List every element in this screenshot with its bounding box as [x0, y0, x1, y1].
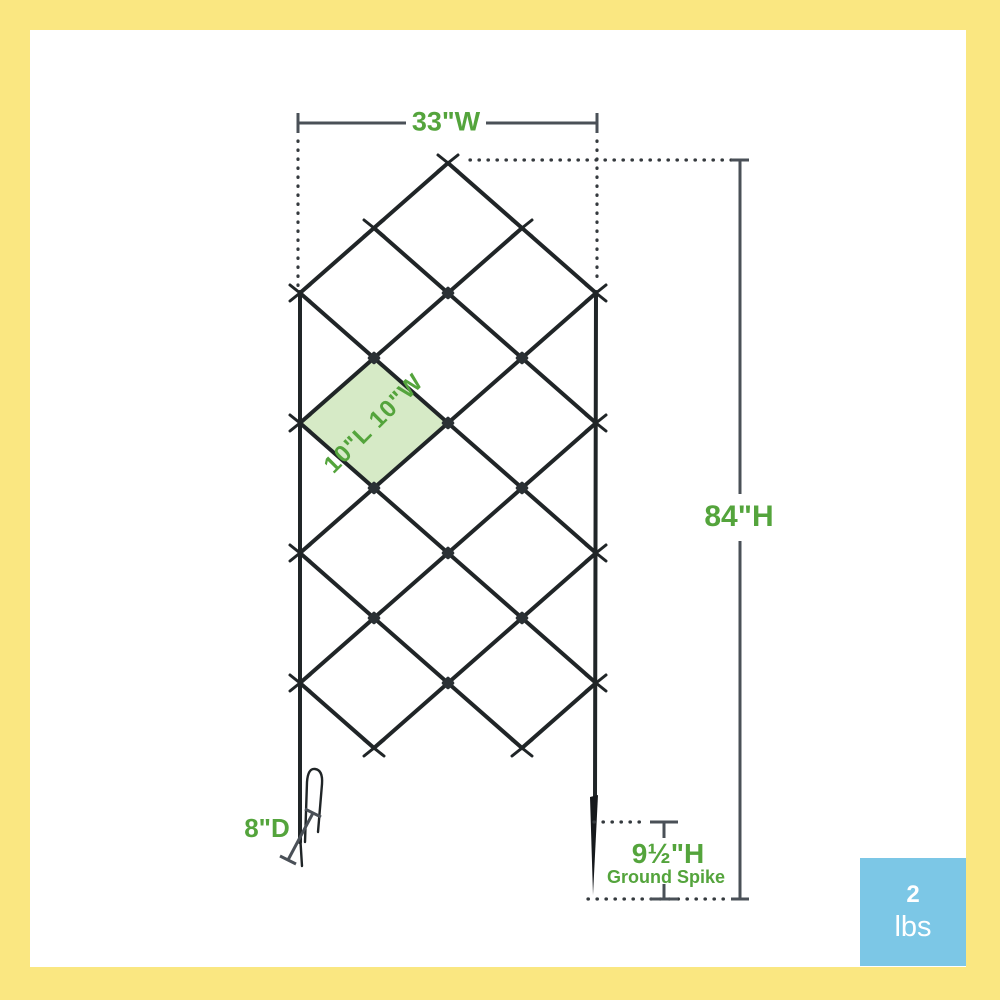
projection-dotted-lines: [298, 141, 733, 899]
weight-badge: 2 lbs: [860, 858, 966, 966]
ground-spike-caption: Ground Spike: [607, 868, 725, 886]
trellis-frame: [290, 155, 606, 895]
lattice-connectors: [367, 286, 529, 690]
right-rail: [595, 292, 596, 800]
right-ground-spike: [590, 795, 598, 895]
weight-unit: lbs: [894, 913, 931, 942]
weight-value: 2: [906, 883, 919, 907]
left-hook-prong: [305, 769, 322, 842]
spike-height-label: 9½"H: [632, 840, 704, 868]
trellis-dimension-drawing: [0, 0, 1000, 1000]
width-dimension-label: 33"W: [412, 109, 480, 136]
depth-dimension-label: 8"D: [244, 815, 290, 841]
left-rail-spike: [301, 842, 303, 866]
height-dimension-label: 84"H: [704, 502, 773, 532]
